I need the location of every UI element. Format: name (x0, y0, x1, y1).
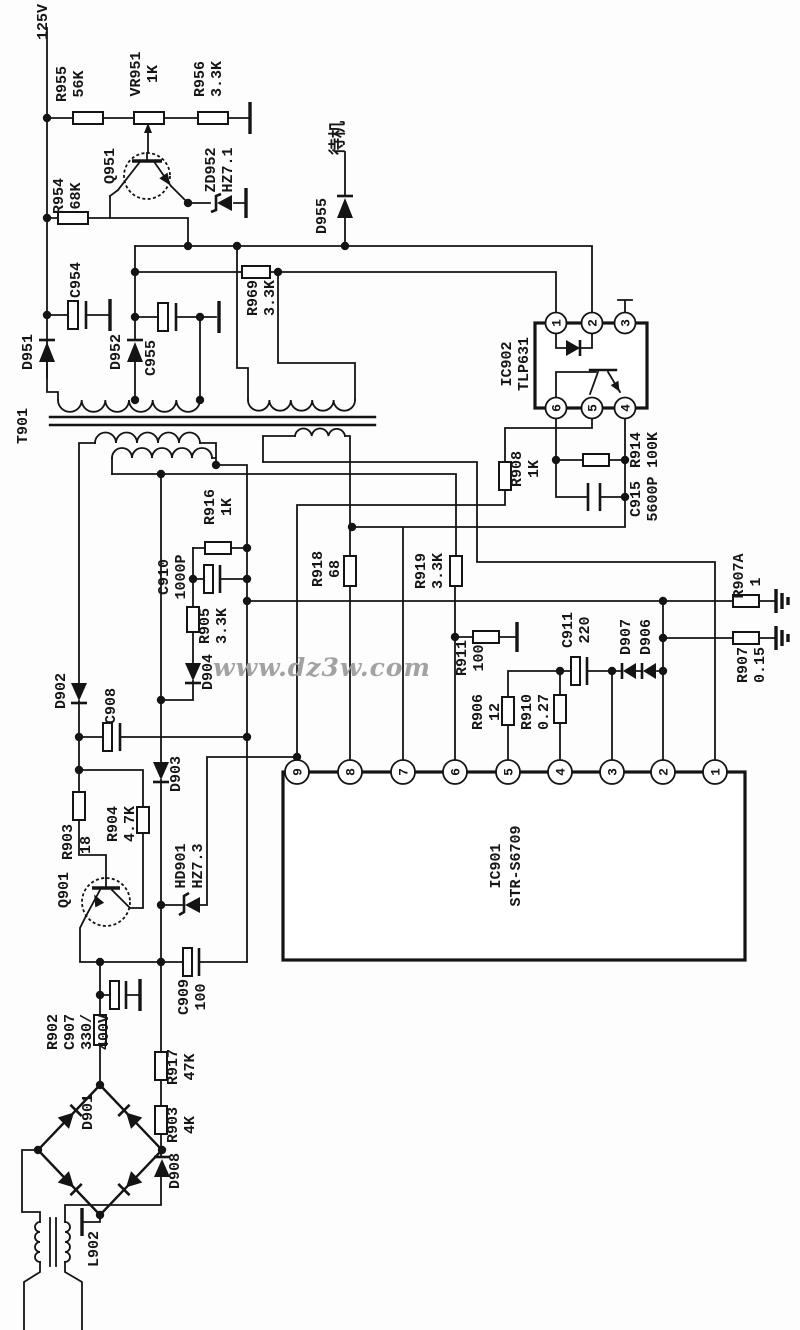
svg-text:R910: R910 (519, 694, 536, 730)
svg-text:3.3K: 3.3K (430, 553, 447, 589)
svg-text:3: 3 (606, 768, 621, 776)
svg-text:T901: T901 (15, 408, 32, 444)
svg-text:R919: R919 (413, 553, 430, 589)
svg-text:100: 100 (193, 983, 210, 1010)
svg-text:D907: D907 (618, 619, 635, 655)
diode-d908: D908 (154, 1153, 184, 1189)
svg-text:C908: C908 (103, 688, 120, 724)
svg-text:1K: 1K (526, 460, 543, 478)
diode-d951: D951 (20, 334, 55, 370)
earth-ground-r907 (776, 626, 788, 650)
svg-text:C909: C909 (176, 979, 193, 1015)
svg-text:VR951: VR951 (128, 51, 145, 96)
resistor-r955: R955 56K (54, 66, 103, 124)
resistor-r903: R903 18 (60, 792, 95, 860)
svg-text:HZ7.3: HZ7.3 (190, 843, 207, 888)
svg-text:68: 68 (327, 560, 344, 578)
svg-text:C915: C915 (628, 481, 645, 517)
svg-text:3.3K: 3.3K (209, 61, 226, 97)
svg-text:C954: C954 (68, 262, 85, 298)
resistor-r907a: R907A 1 (731, 553, 765, 607)
zener-zd952: ZD952 HZ7.1 (203, 147, 246, 218)
choke-l902: L902 (35, 1218, 103, 1267)
svg-text:8: 8 (344, 768, 359, 776)
svg-text:D908: D908 (167, 1153, 184, 1189)
svg-text:56K: 56K (71, 70, 88, 97)
svg-text:TLP631: TLP631 (516, 337, 533, 391)
svg-text:125V: 125V (35, 4, 52, 40)
diode-d903: D903 (153, 756, 185, 792)
svg-text:0.15: 0.15 (752, 647, 769, 683)
svg-text:ZD952: ZD952 (203, 147, 220, 192)
svg-text:0.27: 0.27 (536, 694, 553, 730)
svg-text:IC902: IC902 (499, 341, 516, 386)
svg-text:R904: R904 (105, 806, 122, 842)
svg-text:R916: R916 (202, 489, 219, 525)
svg-text:4.7K: 4.7K (122, 806, 139, 842)
capacitor-c911: C911 220 (560, 612, 594, 685)
diode-d902: D902 (53, 673, 87, 709)
svg-text:Q901: Q901 (56, 872, 73, 908)
optocoupler-ic902: 1 2 3 6 5 4 IC902 TLP631 (499, 300, 647, 419)
svg-text:1K: 1K (145, 65, 162, 83)
resistor-r956: R956 3.3K (192, 61, 228, 124)
svg-text:5600P: 5600P (645, 476, 662, 521)
svg-text:D952: D952 (108, 334, 125, 370)
capacitor-c909: C909 100 (176, 948, 210, 1015)
resistor-r910: R910 0.27 (519, 694, 566, 730)
svg-text:9: 9 (291, 768, 306, 776)
transistor-q901: Q901 (56, 872, 130, 926)
svg-text:R911: R911 (454, 640, 471, 676)
svg-text:6: 6 (449, 768, 464, 776)
svg-text:D902: D902 (53, 673, 70, 709)
svg-text:1: 1 (748, 577, 765, 586)
svg-text:2: 2 (657, 768, 672, 776)
rail-labels: 125V (35, 4, 52, 40)
svg-text:R908: R908 (509, 451, 526, 487)
svg-text:R903: R903 (165, 1107, 182, 1143)
svg-text:C910: C910 (156, 559, 173, 595)
svg-text:R903: R903 (60, 824, 77, 860)
capacitor-c955: C955 (143, 301, 219, 376)
svg-text:HZ7.1: HZ7.1 (220, 147, 237, 192)
svg-text:100: 100 (471, 644, 488, 671)
svg-text:D955: D955 (314, 198, 331, 234)
svg-text:12: 12 (487, 703, 504, 721)
svg-text:R907: R907 (735, 647, 752, 683)
diode-d952: D952 (108, 334, 143, 370)
svg-text:R914: R914 (628, 432, 645, 468)
svg-text:100K: 100K (645, 432, 662, 468)
resistor-r954: R954 68K (51, 178, 88, 224)
svg-text:47K: 47K (182, 1053, 199, 1080)
svg-text:R955: R955 (54, 66, 71, 102)
diode-d907: D907 (618, 619, 636, 679)
diode-d906: D906 (638, 619, 656, 679)
svg-text:R905: R905 (197, 608, 214, 644)
svg-text:D951: D951 (20, 334, 37, 370)
svg-text:R902: R902 (45, 1014, 62, 1050)
svg-text:R956: R956 (192, 61, 209, 97)
svg-text:待机: 待机 (327, 121, 348, 155)
svg-text:3.3K: 3.3K (262, 280, 279, 316)
resistor-r919: R919 3.3K (413, 553, 462, 589)
svg-text:3.3K: 3.3K (214, 608, 231, 644)
svg-text:1: 1 (550, 319, 565, 327)
svg-text:2: 2 (586, 319, 601, 327)
resistor-r906: R906 12 (470, 694, 514, 730)
capacitor-c908: C908 (103, 688, 120, 751)
schematic-canvas: R955 56K VR951 1K R956 3.3K R954 68K R96… (0, 0, 800, 1330)
capacitor-c907: C907 330/ 400V (62, 979, 140, 1050)
svg-text:68K: 68K (68, 182, 85, 209)
svg-text:STR-S6709: STR-S6709 (508, 825, 525, 906)
svg-text:R906: R906 (470, 694, 487, 730)
svg-text:220: 220 (577, 616, 594, 643)
svg-text:330/: 330/ (79, 1014, 96, 1050)
transformer-t901: T901 (15, 400, 375, 458)
svg-text:R917: R917 (165, 1049, 182, 1085)
resistor-r918: R918 68 (310, 551, 356, 587)
ic901-chip: 9 8 7 6 5 4 3 2 1 IC901 STR-S6709 (283, 760, 745, 960)
svg-text:D906: D906 (638, 619, 655, 655)
svg-text:4K: 4K (182, 1116, 199, 1134)
svg-text:R907A: R907A (731, 553, 748, 598)
svg-text:R918: R918 (310, 551, 327, 587)
svg-text:C907: C907 (62, 1014, 79, 1050)
bridge-rectifier-d901: D901 (38, 1085, 162, 1236)
svg-text:IC901: IC901 (488, 843, 505, 888)
svg-text:D901: D901 (80, 1094, 97, 1130)
svg-text:D903: D903 (168, 756, 185, 792)
svg-text:C955: C955 (143, 340, 160, 376)
transistor-q951: Q951 (102, 148, 174, 199)
svg-text:1: 1 (709, 768, 724, 776)
svg-text:Q951: Q951 (102, 148, 119, 184)
svg-text:6: 6 (550, 404, 565, 412)
svg-text:R954: R954 (51, 178, 68, 214)
svg-text:1000P: 1000P (173, 554, 190, 599)
capacitor-c910: C910 1000P (156, 554, 220, 599)
svg-text:18: 18 (78, 836, 95, 854)
svg-text:400V: 400V (96, 1014, 113, 1050)
svg-text:1K: 1K (219, 498, 236, 516)
svg-text:HD901: HD901 (173, 843, 190, 888)
svg-text:7: 7 (397, 768, 412, 776)
svg-text:5: 5 (586, 404, 601, 412)
resistor-r907: R907 0.15 (733, 632, 769, 683)
earth-ground-r907a (776, 589, 788, 613)
capacitor-c954: C954 (68, 262, 110, 331)
diode-d955: D955 待机 (314, 121, 353, 234)
svg-text:5: 5 (502, 768, 517, 776)
resistor-r916: R916 1K (202, 489, 236, 554)
resistor-r917: R917 47K (155, 1049, 199, 1085)
resistor-r969: R969 3.3K (242, 266, 279, 316)
potentiometer-vr951: VR951 1K (128, 51, 164, 133)
svg-text:R969: R969 (245, 280, 262, 316)
schematic-page: R955 56K VR951 1K R956 3.3K R954 68K R96… (0, 0, 800, 1330)
watermark: www.dz3w.com (213, 653, 431, 682)
svg-text:C911: C911 (560, 612, 577, 648)
svg-text:3: 3 (619, 319, 634, 327)
svg-text:4: 4 (554, 768, 569, 776)
svg-text:L902: L902 (86, 1231, 103, 1267)
svg-text:4: 4 (619, 404, 634, 412)
